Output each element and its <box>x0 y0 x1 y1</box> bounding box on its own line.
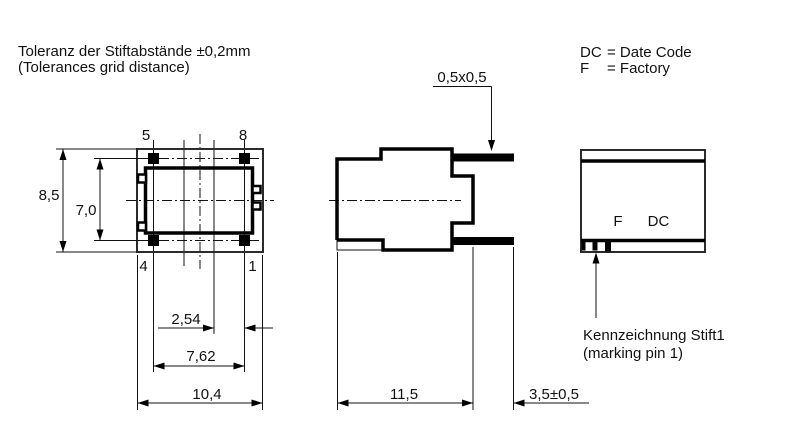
side-view: 0,5x0,5 11,5 3,5±0,5 <box>329 69 589 410</box>
top-view: 5 8 4 1 8,5 7,0 2,54 <box>39 127 274 410</box>
tab-left-top <box>138 175 146 183</box>
pin-label-5: 5 <box>142 127 150 144</box>
legend-f-key: F <box>580 60 589 77</box>
tab-left-bottom <box>138 223 146 231</box>
pin-4-pad <box>148 235 159 246</box>
legend-f-value: = Factory <box>607 60 670 77</box>
leader-pin-section: 0,5x0,5 <box>433 69 495 151</box>
pin-label-4: 4 <box>139 258 147 275</box>
marking-note-line2: (marking pin 1) <box>583 345 683 362</box>
dim-text-3-5: 3,5±0,5 <box>529 386 579 403</box>
dim-text-8-5: 8,5 <box>39 187 60 204</box>
tolerance-note-line2: (Tolerances grid distance) <box>18 59 190 76</box>
front-body-outline <box>581 150 705 252</box>
dimension-3-5: 3,5±0,5 <box>514 247 590 410</box>
dimension-8-5: 8,5 <box>39 149 137 252</box>
marking-note-line1: Kennzeichnung Stift1 <box>583 327 725 344</box>
front-mark-f: F <box>613 213 622 230</box>
legend: DC = Date Code F = Factory <box>580 44 692 77</box>
pin-label-8: 8 <box>239 127 247 144</box>
pin-1-pad <box>239 235 250 246</box>
legend-dc-key: DC <box>580 44 602 61</box>
leader-arrow-down <box>488 140 495 151</box>
drawing-canvas: Toleranz der Stiftabstände ±0,2mm (Toler… <box>0 0 793 434</box>
dimension-10-4: 10,4 <box>138 255 263 410</box>
tab-right-bottom <box>253 203 261 210</box>
dim-text-0-5x0-5: 0,5x0,5 <box>437 69 486 86</box>
legend-dc-value: = Date Code <box>607 44 692 61</box>
side-body-outline <box>337 149 473 250</box>
dim-text-7-0: 7,0 <box>76 202 97 219</box>
dim-text-2-54: 2,54 <box>171 311 200 328</box>
pin1-marking-leader <box>593 253 600 319</box>
dim-text-11-5: 11,5 <box>390 386 418 403</box>
dim-text-7-62: 7,62 <box>186 348 215 365</box>
pin1-marking <box>582 241 612 252</box>
front-view: F DC Kennzeichnung Stift1 (marking pin 1… <box>581 150 725 362</box>
dim-text-10-4: 10,4 <box>192 386 221 403</box>
pin-8-pad <box>239 153 250 164</box>
pin-5-pad <box>148 153 159 164</box>
side-pin-top <box>452 154 514 162</box>
dimension-7-62: 7,62 <box>154 348 245 370</box>
front-mark-dc: DC <box>648 213 670 230</box>
technical-drawing: Toleranz der Stiftabstände ±0,2mm (Toler… <box>0 0 793 434</box>
tolerance-note: Toleranz der Stiftabstände ±0,2mm (Toler… <box>18 43 251 76</box>
dimension-11-5: 11,5 <box>338 247 474 410</box>
side-pin-bottom <box>452 237 514 245</box>
tab-right-top <box>253 186 261 193</box>
pin-label-1: 1 <box>248 258 256 275</box>
leader-arrow-up <box>593 253 600 264</box>
tolerance-note-line1: Toleranz der Stiftabstände ±0,2mm <box>18 43 251 60</box>
dimension-2-54: 2,54 <box>158 311 273 332</box>
